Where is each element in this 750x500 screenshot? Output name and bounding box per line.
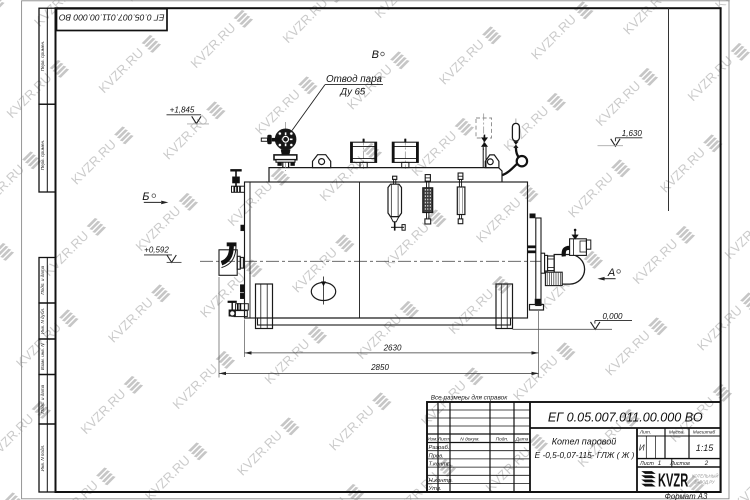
svg-text:KVZR.RU: KVZR.RU <box>630 236 681 287</box>
svg-text:Лист: Лист <box>639 461 654 467</box>
svg-text:KVZR.RU: KVZR.RU <box>0 411 36 462</box>
svg-text:+0,592: +0,592 <box>144 245 169 254</box>
svg-text:KVZR.RU: KVZR.RU <box>188 20 239 71</box>
svg-text:KVZR.RU: KVZR.RU <box>252 87 303 138</box>
svg-text:Лист: Лист <box>437 436 450 442</box>
svg-text:KVZR.RU: KVZR.RU <box>289 245 340 296</box>
svg-text:Б: Б <box>142 191 149 203</box>
svg-text:Взам. инв. N: Взам. инв. N <box>40 343 45 370</box>
svg-text:KVZR.RU: KVZR.RU <box>381 220 432 271</box>
svg-text:ЕГ 0.05.007.011.00.000 ВО: ЕГ 0.05.007.011.00.000 ВО <box>548 411 703 425</box>
svg-text:KVZR.RU: KVZR.RU <box>510 353 561 404</box>
svg-text:Масштаб: Масштаб <box>693 430 716 436</box>
svg-text:KVZR.RU: KVZR.RU <box>78 386 129 437</box>
svg-text:KVZR.RU: KVZR.RU <box>170 361 221 412</box>
svg-text:2850: 2850 <box>370 363 389 372</box>
svg-text:Перв. примен.: Перв. примен. <box>40 41 45 72</box>
svg-text:KVZR.RU: KVZR.RU <box>657 145 708 196</box>
svg-text:KVZR.RU: KVZR.RU <box>436 37 487 88</box>
svg-text:Дата: Дата <box>515 436 529 442</box>
svg-text:2: 2 <box>704 460 709 467</box>
svg-text:Подп. и дата: Подп. и дата <box>40 384 45 413</box>
svg-text:KVZR.RU: KVZR.RU <box>446 286 497 337</box>
svg-text:KVZR.RU: KVZR.RU <box>712 0 750 12</box>
svg-text:KVZR.RU: KVZR.RU <box>96 45 147 96</box>
svg-text:Масса: Масса <box>669 430 684 436</box>
svg-text:KVZR.RU: KVZR.RU <box>528 12 579 63</box>
svg-text:KVZR.RU: KVZR.RU <box>50 478 101 500</box>
svg-text:Изм.: Изм. <box>427 436 437 442</box>
svg-text:Все размеры для справок: Все размеры для справок <box>431 393 509 401</box>
svg-text:1: 1 <box>658 460 661 467</box>
svg-text:KVZR.RU: KVZR.RU <box>0 162 27 213</box>
svg-text:Перв. примен.: Перв. примен. <box>40 140 45 171</box>
svg-text:KVZR.RU: KVZR.RU <box>501 103 552 154</box>
svg-text:Инв. N подл.: Инв. N подл. <box>40 445 45 472</box>
svg-text:KVZR.RU: KVZR.RU <box>391 469 442 500</box>
svg-text:KVZR.RU: KVZR.RU <box>68 137 119 188</box>
svg-text:KVZR.RU: KVZR.RU <box>280 0 331 46</box>
svg-text:0,000: 0,000 <box>602 312 623 321</box>
svg-text:N докум.: N докум. <box>460 436 479 442</box>
svg-text:KVZR.RU: KVZR.RU <box>418 378 469 429</box>
svg-text:Пров.: Пров. <box>429 453 444 459</box>
svg-text:Разраб.: Разраб. <box>429 445 450 451</box>
svg-text:KVZR.RU: KVZR.RU <box>565 170 616 221</box>
svg-text:Подп.: Подп. <box>496 436 509 442</box>
svg-text:В: В <box>372 49 379 61</box>
svg-text:KVZR.RU: KVZR.RU <box>160 112 211 163</box>
svg-text:KVZR.RU: KVZR.RU <box>234 428 285 479</box>
svg-text:Формат А3: Формат А3 <box>665 492 708 500</box>
svg-text:Ду 65: Ду 65 <box>339 87 365 98</box>
svg-text:1,630: 1,630 <box>622 129 643 138</box>
svg-text:И: И <box>639 444 645 453</box>
svg-text:1:15: 1:15 <box>696 443 715 453</box>
svg-text:KVZR.RU: KVZR.RU <box>105 295 156 346</box>
svg-text:Т.контр.: Т.контр. <box>429 462 452 468</box>
svg-text:KVZR.RU: KVZR.RU <box>262 336 313 387</box>
svg-text:KVZR.RU: KVZR.RU <box>326 403 377 454</box>
svg-text:KVZR.RU: KVZR.RU <box>354 311 405 362</box>
svg-text:Подп. и дата: Подп. и дата <box>40 265 45 294</box>
svg-text:KVZR.RU: KVZR.RU <box>694 303 745 354</box>
svg-text:KVZR.RU: KVZR.RU <box>602 328 653 379</box>
svg-text:Инв. N дубл.: Инв. N дубл. <box>40 308 45 335</box>
svg-text:А: А <box>607 267 615 279</box>
svg-text:ЗАВОД.РУ: ЗАВОД.РУ <box>694 480 716 485</box>
svg-text:KVZR.RU: KVZR.RU <box>731 461 750 500</box>
svg-text:ЕГ 0.05.007.011.00.000 ВО: ЕГ 0.05.007.011.00.000 ВО <box>59 12 165 22</box>
svg-text:KVZR.RU: KVZR.RU <box>722 211 750 262</box>
svg-text:KVZR.RU: KVZR.RU <box>685 53 736 104</box>
svg-text:+1,845: +1,845 <box>170 105 195 114</box>
svg-text:КОТЕЛЬНЫЙ: КОТЕЛЬНЫЙ <box>692 474 718 479</box>
svg-text:Отвод пара: Отвод пара <box>326 74 383 85</box>
svg-text:KVZR: KVZR <box>658 471 688 492</box>
svg-text:Котел паровой: Котел паровой <box>552 437 617 447</box>
svg-text:2630: 2630 <box>383 344 402 353</box>
svg-text:KVZR.RU: KVZR.RU <box>372 0 423 21</box>
svg-text:KVZR.RU: KVZR.RU <box>620 0 671 37</box>
svg-text:Е -0,5-0,07-115- ГЛЖ ( Ж ): Е -0,5-0,07-115- ГЛЖ ( Ж ) <box>535 450 635 460</box>
svg-text:Утв.: Утв. <box>428 486 442 492</box>
svg-text:KVZR.RU: KVZR.RU <box>593 78 644 129</box>
svg-text:Н.контр.: Н.контр. <box>429 478 454 484</box>
svg-text:Листов: Листов <box>669 461 690 467</box>
svg-text:Лит.: Лит. <box>639 430 651 436</box>
svg-text:KVZR.RU: KVZR.RU <box>41 228 92 279</box>
svg-text:KVZR.RU: KVZR.RU <box>473 195 524 246</box>
